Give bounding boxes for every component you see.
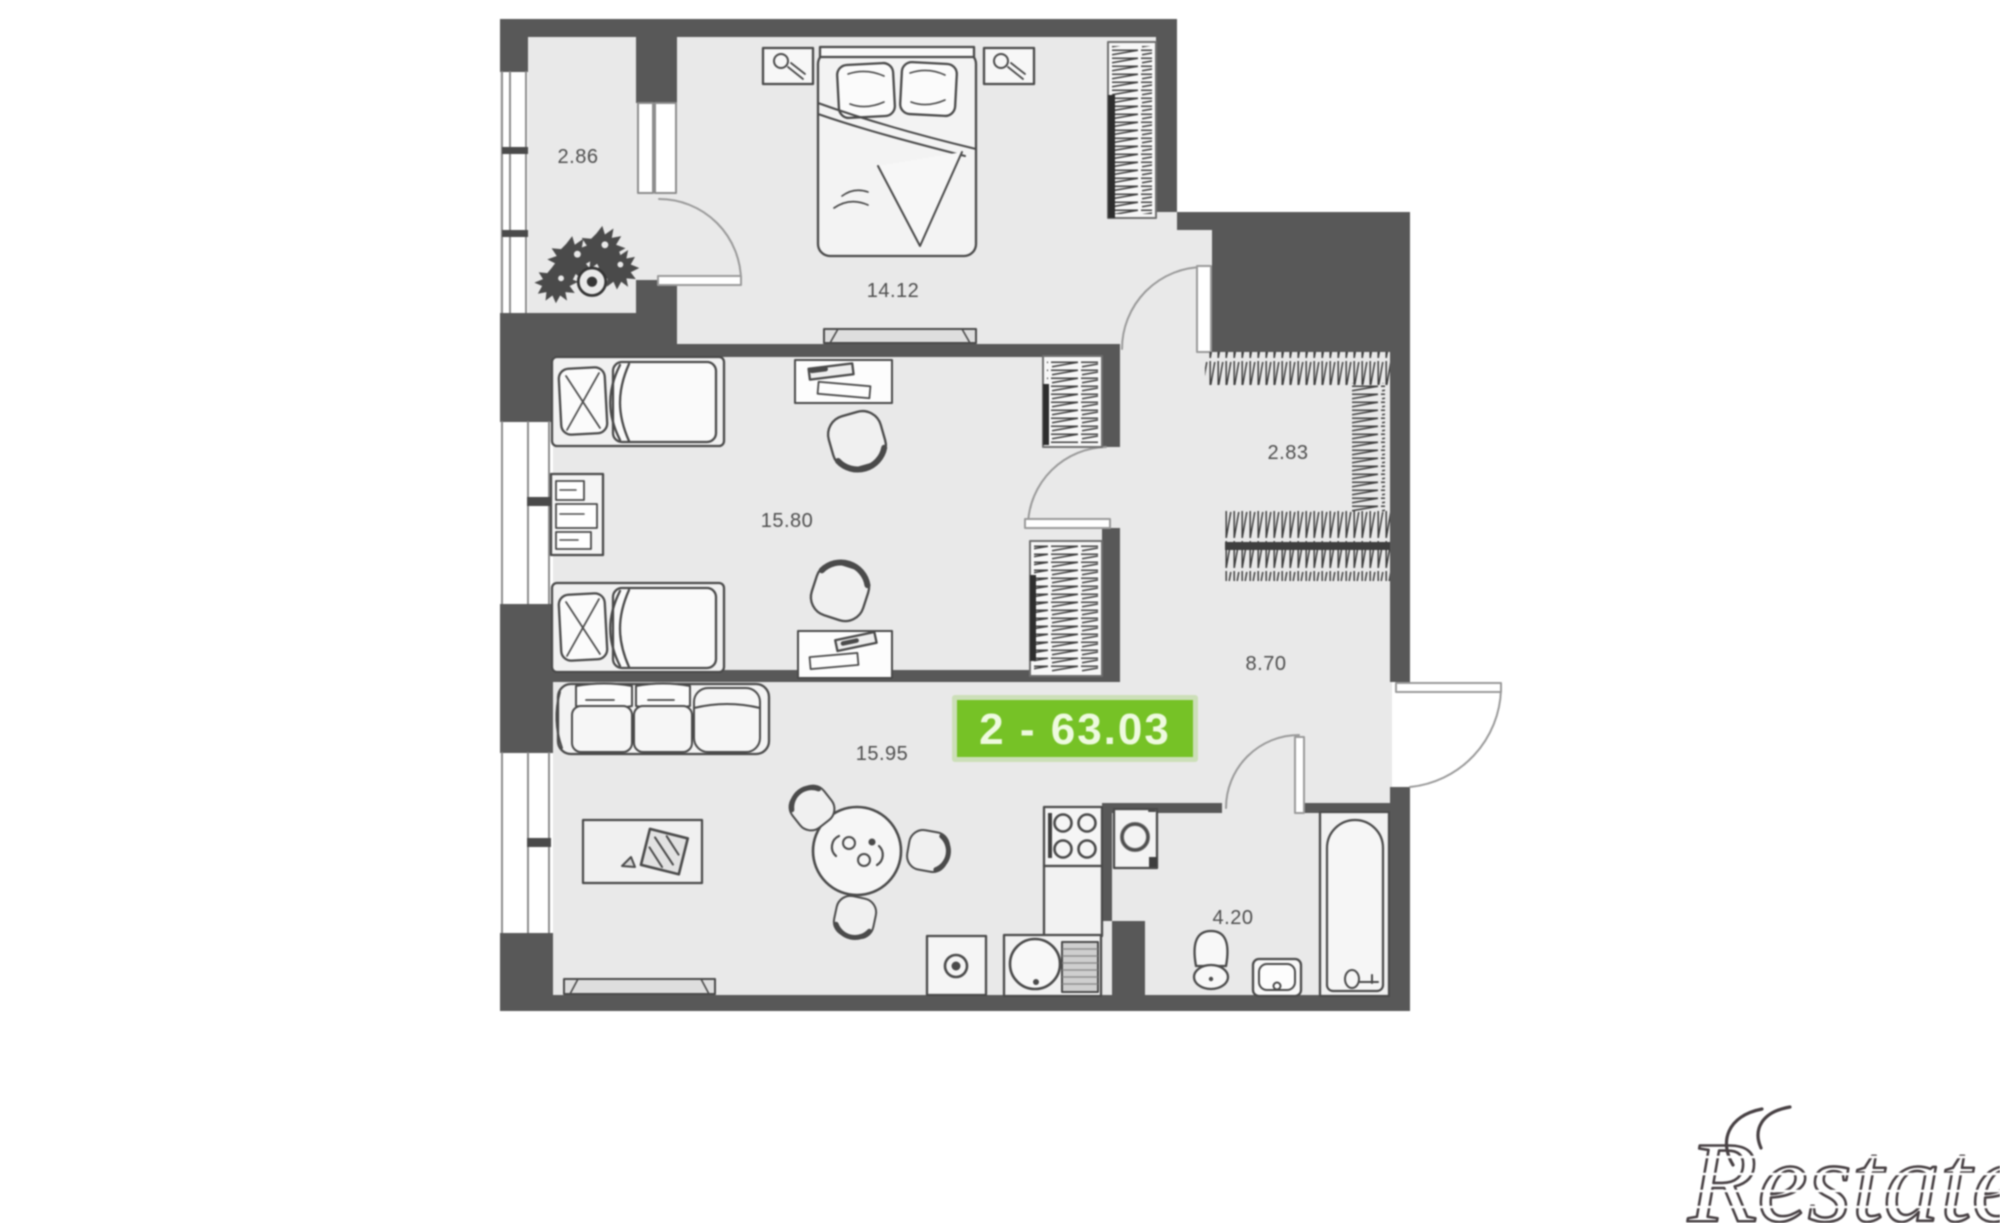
svg-text:15.80: 15.80 [761,510,814,532]
svg-text:4.20: 4.20 [1213,907,1254,929]
svg-text:14.12: 14.12 [867,280,920,302]
svg-text:2 - 63.03: 2 - 63.03 [979,705,1171,754]
svg-text:8.70: 8.70 [1246,653,1287,675]
svg-text:15.95: 15.95 [856,743,909,765]
svg-text:2.86: 2.86 [558,146,599,168]
svg-text:2.83: 2.83 [1268,442,1309,464]
